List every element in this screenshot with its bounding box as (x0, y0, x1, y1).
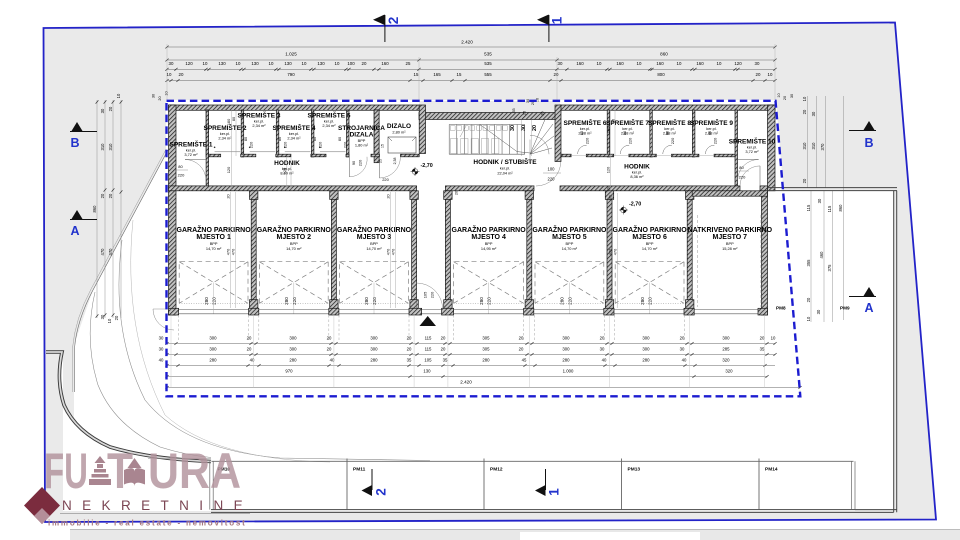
svg-text:30: 30 (152, 94, 156, 98)
svg-text:35: 35 (541, 111, 545, 115)
svg-text:14,70 m²: 14,70 m² (562, 246, 578, 251)
svg-text:14,70 m²: 14,70 m² (206, 246, 222, 251)
svg-text:280: 280 (284, 297, 289, 305)
svg-text:130: 130 (251, 61, 259, 66)
svg-text:20: 20 (756, 72, 761, 77)
svg-text:310: 310 (811, 142, 816, 150)
svg-text:10: 10 (107, 318, 112, 323)
svg-text:35: 35 (443, 358, 448, 363)
svg-text:35: 35 (407, 358, 412, 363)
svg-text:14,70 m²: 14,70 m² (286, 246, 302, 251)
svg-text:800: 800 (657, 72, 665, 77)
svg-text:15: 15 (414, 72, 419, 77)
svg-text:20: 20 (108, 106, 113, 111)
svg-text:355: 355 (806, 259, 811, 267)
svg-text:A: A (864, 301, 873, 315)
svg-text:280: 280 (562, 358, 570, 363)
svg-text:305: 305 (482, 336, 490, 341)
svg-text:PM14: PM14 (765, 467, 778, 473)
svg-text:GARAŽNO PARKIRNO: GARAŽNO PARKIRNO (532, 225, 607, 234)
svg-text:160: 160 (381, 61, 389, 66)
svg-text:20: 20 (407, 347, 412, 352)
svg-text:160: 160 (576, 61, 584, 66)
svg-text:15,28 m²: 15,28 m² (722, 246, 738, 251)
svg-text:220: 220 (249, 141, 254, 148)
svg-text:-2,70: -2,70 (629, 202, 641, 208)
svg-text:220: 220 (487, 297, 492, 305)
svg-text:120: 120 (734, 61, 742, 66)
svg-text:55: 55 (512, 108, 516, 112)
svg-text:20: 20 (680, 336, 685, 341)
svg-text:105: 105 (423, 292, 428, 299)
svg-text:immobilie - real estate - nemo: immobilie - real estate - nemovitost (48, 519, 247, 528)
svg-text:375: 375 (827, 264, 832, 272)
svg-text:B: B (864, 136, 873, 150)
svg-text:2,80 m²: 2,80 m² (392, 130, 406, 135)
svg-text:20: 20 (100, 193, 105, 198)
svg-text:220: 220 (548, 177, 556, 182)
svg-text:80: 80 (739, 165, 744, 170)
svg-text:10: 10 (777, 93, 781, 97)
svg-text:115: 115 (827, 205, 832, 212)
svg-text:860: 860 (838, 204, 843, 212)
svg-text:NEKRETNINE: NEKRETNINE (62, 498, 253, 513)
svg-text:10: 10 (677, 61, 682, 66)
svg-text:30: 30 (159, 336, 164, 341)
svg-text:20: 20 (519, 336, 524, 341)
svg-text:1.025: 1.025 (285, 52, 297, 57)
svg-text:10: 10 (302, 61, 307, 66)
svg-text:20: 20 (247, 347, 252, 352)
svg-text:470: 470 (100, 248, 105, 256)
svg-text:1,80 m²: 1,80 m² (355, 143, 369, 148)
svg-text:10: 10 (269, 61, 274, 66)
svg-text:220: 220 (318, 141, 323, 148)
svg-text:30: 30 (790, 94, 794, 98)
svg-text:220: 220 (372, 297, 377, 305)
svg-text:300: 300 (642, 347, 650, 352)
svg-text:20: 20 (519, 347, 524, 352)
svg-text:20: 20 (441, 347, 446, 352)
svg-text:20: 20 (441, 336, 446, 341)
svg-text:790: 790 (287, 72, 295, 77)
svg-text:14,70 m²: 14,70 m² (642, 246, 658, 251)
svg-text:220: 220 (292, 297, 297, 305)
svg-text:20: 20 (783, 96, 787, 100)
svg-text:40: 40 (250, 358, 255, 363)
svg-text:20: 20 (327, 347, 332, 352)
svg-text:GARAŽNO PARKIRNO: GARAŽNO PARKIRNO (613, 225, 688, 234)
svg-text:280: 280 (640, 297, 645, 305)
svg-text:310: 310 (100, 143, 105, 151)
svg-text:30: 30 (600, 347, 605, 352)
svg-text:1: 1 (547, 488, 562, 496)
svg-text:320: 320 (722, 358, 730, 363)
svg-text:10: 10 (771, 336, 776, 341)
svg-text:40: 40 (330, 358, 335, 363)
svg-text:220: 220 (430, 291, 435, 298)
svg-text:20: 20 (802, 178, 807, 183)
svg-text:2,34 m²: 2,34 m² (287, 135, 301, 140)
svg-text:25: 25 (379, 159, 383, 163)
svg-text:280: 280 (370, 358, 378, 363)
svg-text:10: 10 (768, 72, 773, 77)
svg-text:300: 300 (209, 336, 217, 341)
svg-text:120: 120 (185, 61, 193, 66)
svg-text:35: 35 (760, 347, 765, 352)
svg-text:120: 120 (606, 166, 611, 173)
svg-text:120: 120 (282, 167, 287, 174)
svg-text:20: 20 (407, 336, 412, 341)
svg-text:20: 20 (158, 96, 162, 100)
svg-text:NATKRIVENO PARKIRNO: NATKRIVENO PARKIRNO (688, 227, 773, 234)
svg-text:130: 130 (284, 61, 292, 66)
svg-text:555: 555 (484, 72, 492, 77)
svg-text:220: 220 (585, 137, 590, 144)
svg-text:10: 10 (637, 61, 642, 66)
svg-text:220: 220 (567, 297, 572, 305)
svg-text:PM11: PM11 (353, 467, 366, 473)
svg-text:280: 280 (482, 358, 490, 363)
svg-text:220: 220 (648, 297, 653, 305)
svg-text:220: 220 (382, 177, 389, 182)
svg-text:2.420: 2.420 (460, 380, 472, 385)
svg-text:2,38: 2,38 (393, 158, 397, 165)
svg-text:GARAŽNO PARKIRNO: GARAŽNO PARKIRNO (452, 225, 527, 234)
svg-text:80: 80 (178, 164, 183, 169)
svg-text:30: 30 (755, 61, 760, 66)
svg-text:30: 30 (558, 61, 563, 66)
svg-text:2,34 m²: 2,34 m² (218, 135, 232, 140)
svg-text:25: 25 (406, 61, 411, 66)
svg-text:22,04 m²: 22,04 m² (497, 171, 513, 176)
svg-text:160: 160 (696, 61, 704, 66)
svg-text:105: 105 (424, 358, 432, 363)
svg-text:20: 20 (554, 72, 559, 77)
svg-text:2,34 m²: 2,34 m² (252, 123, 266, 128)
svg-text:220: 220 (627, 137, 632, 144)
svg-text:10: 10 (335, 61, 340, 66)
svg-text:A: A (70, 224, 79, 238)
svg-text:180: 180 (606, 126, 611, 133)
svg-text:10: 10 (165, 91, 169, 95)
svg-text:15: 15 (381, 144, 385, 148)
svg-text:8,36 m²: 8,36 m² (630, 174, 644, 179)
svg-text:URA: URA (148, 443, 241, 499)
svg-text:40: 40 (682, 358, 687, 363)
svg-text:10: 10 (167, 72, 172, 77)
svg-text:30: 30 (510, 125, 516, 131)
svg-text:30: 30 (521, 125, 527, 131)
svg-text:2.420: 2.420 (461, 40, 473, 45)
svg-text:115: 115 (425, 336, 432, 341)
svg-text:160: 160 (616, 61, 624, 66)
svg-text:305: 305 (482, 347, 490, 352)
svg-text:970: 970 (285, 369, 293, 374)
svg-text:15: 15 (457, 72, 462, 77)
svg-text:300: 300 (370, 347, 378, 352)
svg-text:10: 10 (806, 316, 811, 321)
svg-text:2: 2 (386, 17, 401, 25)
svg-text:285: 285 (722, 347, 730, 352)
svg-text:310: 310 (108, 143, 113, 151)
svg-text:280: 280 (204, 297, 209, 305)
svg-text:280: 280 (560, 297, 565, 305)
svg-text:20: 20 (247, 336, 252, 341)
svg-text:220: 220 (739, 175, 746, 180)
svg-text:25: 25 (523, 111, 527, 115)
svg-text:300: 300 (289, 336, 297, 341)
svg-text:470: 470 (613, 248, 618, 255)
svg-text:280: 280 (364, 297, 369, 305)
svg-text:470: 470 (108, 248, 113, 256)
svg-text:20: 20 (108, 193, 113, 198)
svg-text:40: 40 (602, 358, 607, 363)
svg-text:535: 535 (484, 52, 492, 57)
svg-text:1.000: 1.000 (563, 369, 574, 374)
svg-text:20: 20 (327, 336, 332, 341)
svg-text:280: 280 (479, 297, 484, 305)
svg-text:14,70 m²: 14,70 m² (366, 246, 382, 251)
svg-text:GARAŽNO PARKIRNO: GARAŽNO PARKIRNO (337, 225, 412, 234)
svg-text:PM12: PM12 (490, 467, 503, 473)
svg-text:20: 20 (532, 125, 538, 131)
svg-text:220: 220 (178, 173, 185, 178)
svg-text:30: 30 (159, 347, 164, 352)
svg-text:300: 300 (209, 347, 217, 352)
svg-text:10: 10 (203, 61, 208, 66)
svg-text:PM9: PM9 (840, 306, 850, 311)
svg-text:40: 40 (159, 358, 164, 363)
svg-text:860: 860 (92, 205, 97, 213)
svg-text:45: 45 (522, 358, 527, 363)
svg-text:320: 320 (725, 369, 733, 374)
svg-text:10: 10 (236, 61, 241, 66)
svg-text:460: 460 (819, 251, 824, 259)
svg-text:535: 535 (484, 61, 492, 66)
svg-text:220: 220 (713, 137, 718, 144)
svg-text:PM13: PM13 (628, 467, 641, 473)
svg-text:30: 30 (100, 314, 105, 319)
svg-text:280: 280 (209, 358, 217, 363)
svg-text:115: 115 (806, 204, 811, 211)
svg-text:30: 30 (811, 111, 816, 116)
svg-text:10: 10 (116, 93, 121, 98)
svg-text:B: B (70, 136, 79, 150)
svg-text:30: 30 (680, 347, 685, 352)
svg-text:PM8: PM8 (776, 306, 786, 311)
svg-text:300: 300 (370, 336, 378, 341)
svg-text:470: 470 (231, 248, 236, 255)
svg-text:FU: FU (44, 443, 88, 499)
svg-text:130: 130 (218, 61, 226, 66)
svg-text:GARAŽNO PARKIRNO: GARAŽNO PARKIRNO (177, 225, 252, 234)
svg-text:220: 220 (212, 297, 217, 305)
svg-text:3,72 m²: 3,72 m² (745, 149, 759, 154)
svg-text:130: 130 (317, 61, 325, 66)
svg-text:20: 20 (179, 72, 184, 77)
svg-text:2,34 m²: 2,34 m² (322, 123, 336, 128)
svg-text:120: 120 (226, 166, 231, 173)
svg-text:220: 220 (358, 159, 363, 166)
svg-text:370: 370 (820, 143, 825, 151)
svg-text:220: 220 (283, 141, 288, 148)
svg-text:160: 160 (656, 61, 664, 66)
svg-text:20: 20 (114, 315, 119, 320)
svg-text:300: 300 (722, 336, 730, 341)
svg-text:GARAŽNO PARKIRNO: GARAŽNO PARKIRNO (257, 225, 332, 234)
svg-text:-2,70: -2,70 (421, 163, 433, 169)
svg-text:30: 30 (169, 61, 174, 66)
svg-text:20: 20 (806, 297, 811, 302)
svg-text:14,95 m²: 14,95 m² (481, 246, 497, 251)
svg-text:165: 165 (433, 72, 441, 77)
svg-text:300: 300 (642, 336, 650, 341)
svg-text:10: 10 (802, 96, 807, 101)
svg-text:20: 20 (760, 336, 765, 341)
svg-text:300: 300 (562, 336, 570, 341)
svg-text:30: 30 (100, 108, 105, 113)
svg-text:10: 10 (597, 61, 602, 66)
svg-text:100: 100 (548, 167, 556, 172)
svg-text:115: 115 (425, 347, 432, 352)
svg-text:100: 100 (347, 61, 355, 66)
svg-text:10: 10 (717, 61, 722, 66)
svg-text:300: 300 (289, 347, 297, 352)
svg-text:20: 20 (802, 109, 807, 114)
svg-text:30: 30 (817, 198, 822, 203)
svg-text:220: 220 (343, 141, 348, 148)
svg-text:470: 470 (391, 248, 396, 255)
svg-text:30: 30 (816, 309, 821, 314)
svg-text:280: 280 (642, 358, 650, 363)
svg-text:2: 2 (374, 488, 389, 496)
svg-text:20: 20 (362, 61, 367, 66)
svg-text:860: 860 (660, 52, 668, 57)
svg-text:220: 220 (670, 137, 675, 144)
svg-text:310: 310 (802, 142, 807, 150)
svg-text:1: 1 (550, 16, 565, 24)
svg-text:280: 280 (289, 358, 297, 363)
svg-text:300: 300 (562, 347, 570, 352)
svg-text:130: 130 (423, 369, 431, 374)
svg-text:3,72 m²: 3,72 m² (184, 152, 198, 157)
